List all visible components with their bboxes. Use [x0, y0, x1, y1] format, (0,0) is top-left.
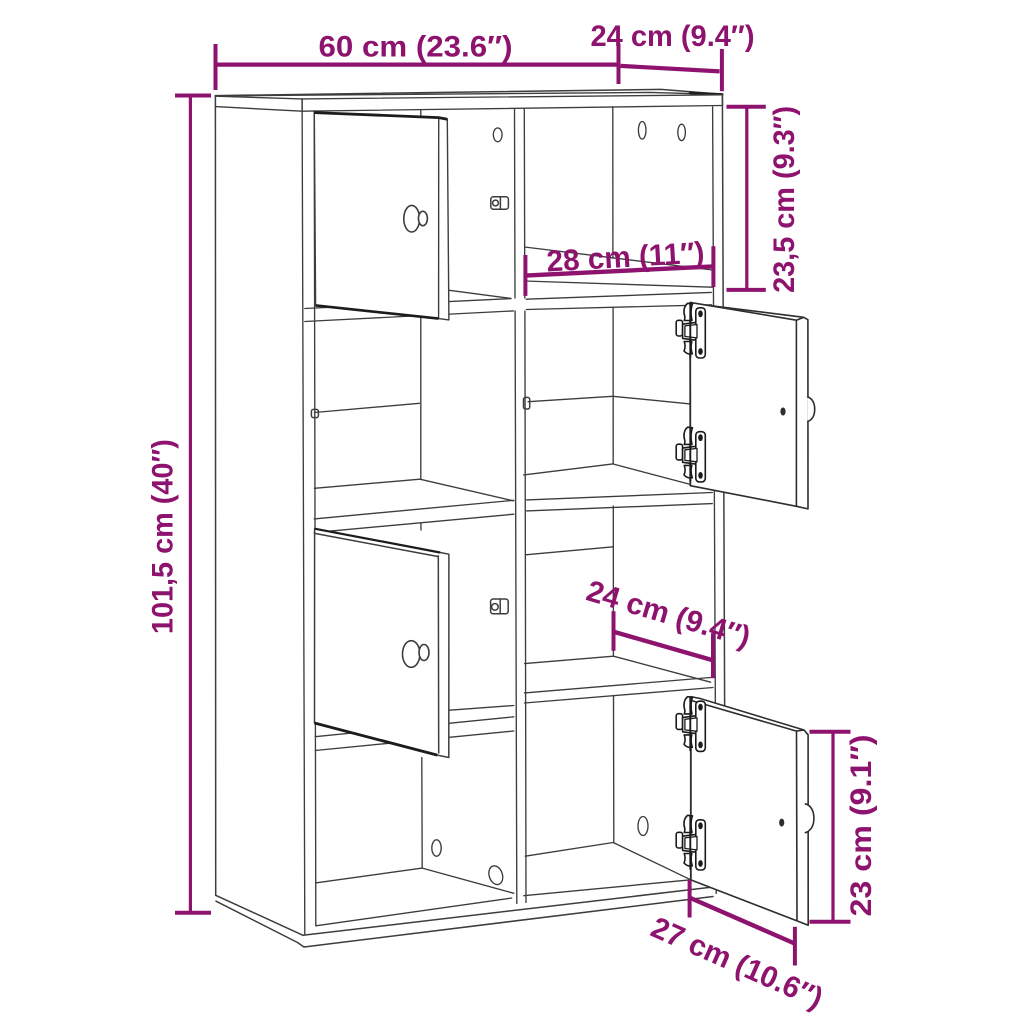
- svg-text:23,5 cm (9.3″): 23,5 cm (9.3″): [768, 106, 801, 293]
- svg-text:60 cm (23.6″): 60 cm (23.6″): [319, 31, 513, 64]
- svg-text:101,5 cm (40″): 101,5 cm (40″): [147, 439, 180, 634]
- svg-text:23 cm (9.1″): 23 cm (9.1″): [845, 735, 878, 917]
- svg-text:24 cm (9.4″): 24 cm (9.4″): [591, 20, 755, 53]
